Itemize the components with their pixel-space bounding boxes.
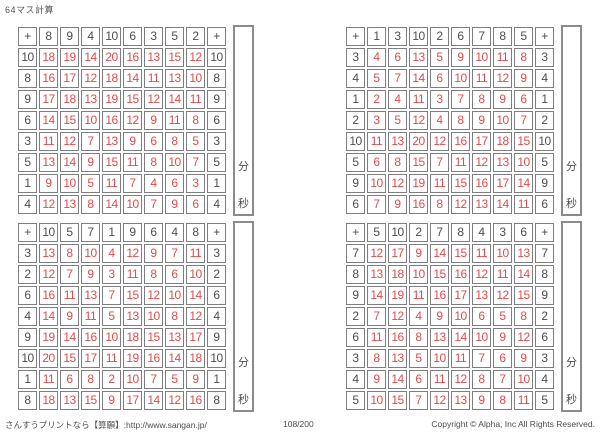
answer-cell: 11: [451, 349, 470, 368]
answer-cell: 17: [81, 349, 100, 368]
answer-cell: 7: [388, 69, 407, 88]
answer-cell: 14: [60, 153, 79, 172]
answer-cell: 4: [367, 48, 386, 67]
answer-cell: 11: [81, 307, 100, 326]
right-header-cell: 2: [535, 111, 554, 130]
answer-cell: 3: [186, 174, 205, 193]
answer-cell: 13: [388, 349, 407, 368]
answer-cell: 14: [144, 391, 163, 410]
left-header-cell: 8: [346, 265, 365, 284]
answer-cell: 12: [81, 69, 100, 88]
answer-cell: 7: [165, 244, 184, 263]
left-header-cell: 3: [18, 244, 37, 263]
right-header-cell: 1: [207, 174, 226, 193]
left-header-cell: 2: [346, 307, 365, 326]
answer-cell: 4: [409, 307, 428, 326]
top-header-cell: 2: [430, 27, 449, 46]
answer-cell: 8: [165, 132, 184, 151]
answer-cell: 11: [144, 69, 163, 88]
top-header-cell: 4: [81, 27, 100, 46]
answer-cell: 8: [186, 111, 205, 130]
answer-cell: 8: [81, 370, 100, 389]
footer-page-number: 108/200: [283, 419, 314, 429]
top-header-cell: 6: [144, 223, 163, 242]
answer-cell: 7: [81, 132, 100, 151]
answer-cell: 14: [367, 286, 386, 305]
answer-cell: 16: [39, 286, 58, 305]
answer-cell: 13: [472, 286, 491, 305]
answer-cell: 12: [430, 132, 449, 151]
answer-cell: 8: [144, 265, 163, 284]
answer-cell: 10: [430, 349, 449, 368]
answer-cell: 3: [367, 111, 386, 130]
answer-cell: 5: [430, 48, 449, 67]
minutes-label: 分: [235, 354, 252, 370]
answer-cell: 9: [81, 265, 100, 284]
answer-cell: 10: [472, 328, 491, 347]
answer-cell: 10: [81, 244, 100, 263]
top-header-cell: 8: [451, 223, 470, 242]
answer-cell: 2: [367, 90, 386, 109]
answer-cell: 8: [430, 195, 449, 214]
answer-cell: 15: [144, 328, 163, 347]
answer-cell: 11: [409, 286, 428, 305]
answer-cell: 17: [123, 391, 142, 410]
answer-cell: 12: [39, 195, 58, 214]
right-header-cell: 9: [535, 286, 554, 305]
answer-cell: 8: [388, 153, 407, 172]
top-header-cell: 5: [367, 223, 386, 242]
answer-cell: 12: [144, 286, 163, 305]
answer-cell: 18: [388, 265, 407, 284]
answer-cell: 9: [367, 370, 386, 389]
answer-cell: 17: [60, 69, 79, 88]
left-header-cell: 9: [346, 286, 365, 305]
answer-cell: 13: [514, 244, 533, 263]
left-header-cell: 4: [346, 69, 365, 88]
answer-cell: 12: [123, 111, 142, 130]
answer-cell: 8: [81, 195, 100, 214]
right-header-cell: 9: [535, 174, 554, 193]
answer-cell: 8: [165, 307, 184, 326]
answer-cell: 15: [81, 391, 100, 410]
top-header-cell: 7: [430, 223, 449, 242]
left-header-cell: 9: [18, 90, 37, 109]
right-header-cell: 4: [535, 370, 554, 389]
answer-cell: 7: [123, 174, 142, 193]
right-header-cell: 1: [207, 370, 226, 389]
right-header-cell: 9: [207, 90, 226, 109]
answer-cell: 13: [493, 153, 512, 172]
top-header-cell: 4: [165, 223, 184, 242]
left-header-cell: 10: [346, 132, 365, 151]
right-header-cell: 5: [535, 391, 554, 410]
answer-cell: 9: [144, 111, 163, 130]
left-header-cell: 8: [18, 391, 37, 410]
answer-cell: 4: [102, 244, 121, 263]
operator-cell: +: [346, 27, 365, 46]
left-header-cell: 2: [346, 111, 365, 130]
answer-cell: 15: [430, 265, 449, 284]
answer-cell: 8: [367, 349, 386, 368]
answer-cell: 12: [144, 90, 163, 109]
answer-cell: 11: [367, 132, 386, 151]
right-header-cell: 6: [207, 286, 226, 305]
answer-cell: 14: [514, 265, 533, 284]
answer-cell: 10: [451, 307, 470, 326]
answer-cell: 5: [165, 370, 184, 389]
answer-cell: 2: [102, 370, 121, 389]
answer-cell: 13: [144, 48, 163, 67]
answer-cell: 9: [493, 90, 512, 109]
answer-cell: 12: [388, 174, 407, 193]
right-header-cell: 10: [535, 132, 554, 151]
right-header-cell: 8: [207, 69, 226, 88]
answer-cell: 12: [367, 244, 386, 263]
answer-cell: 7: [367, 195, 386, 214]
answer-cell: 13: [388, 132, 407, 151]
answer-cell: 16: [123, 48, 142, 67]
answer-cell: 16: [81, 328, 100, 347]
answer-cell: 14: [81, 48, 100, 67]
answer-cell: 9: [493, 328, 512, 347]
answer-cell: 13: [102, 132, 121, 151]
answer-cell: 14: [186, 286, 205, 305]
answer-cell: 7: [430, 153, 449, 172]
answer-cell: 10: [144, 307, 163, 326]
answer-cell: 12: [186, 307, 205, 326]
timer-box: 分 秒: [233, 25, 254, 216]
operator-cell: +: [207, 27, 226, 46]
answer-cell: 9: [81, 153, 100, 172]
answer-cell: 13: [39, 153, 58, 172]
answer-cell: 4: [430, 111, 449, 130]
left-header-cell: 9: [346, 174, 365, 193]
answer-cell: 9: [39, 174, 58, 193]
answer-cell: 16: [388, 328, 407, 347]
answer-cell: 5: [102, 307, 121, 326]
right-header-cell: 1: [535, 90, 554, 109]
left-header-cell: 3: [18, 132, 37, 151]
answer-cell: 5: [388, 111, 407, 130]
calc-grid-table-4: +510278436+71217914151110137813181015161…: [344, 221, 556, 412]
top-header-cell: 3: [144, 27, 163, 46]
answer-cell: 6: [144, 132, 163, 151]
minutes-label: 分: [235, 158, 252, 174]
right-header-cell: 8: [535, 265, 554, 284]
answer-cell: 9: [165, 195, 184, 214]
left-header-cell: 7: [346, 244, 365, 263]
answer-cell: 12: [472, 153, 491, 172]
top-header-cell: 5: [165, 27, 184, 46]
left-header-cell: 6: [346, 328, 365, 347]
answer-cell: 7: [367, 307, 386, 326]
answer-cell: 16: [186, 391, 205, 410]
top-header-cell: 10: [388, 223, 407, 242]
answer-cell: 11: [102, 349, 121, 368]
answer-cell: 6: [186, 195, 205, 214]
answer-cell: 12: [451, 195, 470, 214]
left-header-cell: 5: [346, 153, 365, 172]
answer-cell: 14: [165, 90, 184, 109]
answer-cell: 11: [430, 370, 449, 389]
answer-cell: 17: [493, 174, 512, 193]
answer-cell: 16: [409, 195, 428, 214]
answer-cell: 13: [81, 90, 100, 109]
right-header-cell: 10: [207, 349, 226, 368]
answer-cell: 9: [409, 244, 428, 263]
answer-cell: 9: [472, 391, 491, 410]
operator-cell: +: [535, 27, 554, 46]
answer-cell: 6: [388, 48, 407, 67]
right-header-cell: 2: [207, 265, 226, 284]
answer-cell: 8: [409, 328, 428, 347]
answer-cell: 16: [39, 69, 58, 88]
answer-cell: 10: [123, 370, 142, 389]
answer-cell: 9: [102, 391, 121, 410]
answer-cell: 14: [493, 195, 512, 214]
answer-cell: 9: [451, 48, 470, 67]
right-header-cell: 6: [535, 195, 554, 214]
answer-cell: 11: [102, 174, 121, 193]
left-header-cell: 2: [18, 265, 37, 284]
top-header-cell: 6: [451, 27, 470, 46]
answer-cell: 12: [430, 391, 449, 410]
answer-cell: 12: [39, 265, 58, 284]
answer-cell: 18: [39, 48, 58, 67]
answer-cell: 6: [430, 69, 449, 88]
answer-cell: 7: [409, 391, 428, 410]
answer-cell: 18: [102, 69, 121, 88]
answer-cell: 11: [514, 195, 533, 214]
answer-cell: 6: [367, 153, 386, 172]
answer-cell: 7: [493, 370, 512, 389]
answer-cell: 3: [102, 265, 121, 284]
top-header-cell: 8: [186, 223, 205, 242]
answer-cell: 19: [39, 328, 58, 347]
seconds-label: 秒: [235, 195, 252, 211]
calc-grid-block-4: +510278436+71217914151110137813181015161…: [344, 221, 582, 412]
answer-cell: 10: [102, 328, 121, 347]
answer-cell: 11: [451, 153, 470, 172]
left-header-cell: 3: [346, 349, 365, 368]
operator-cell: +: [535, 223, 554, 242]
answer-cell: 13: [409, 48, 428, 67]
answer-cell: 17: [186, 328, 205, 347]
left-header-cell: 5: [346, 391, 365, 410]
answer-cell: 15: [388, 391, 407, 410]
answer-cell: 10: [451, 69, 470, 88]
answer-cell: 10: [493, 244, 512, 263]
answer-cell: 3: [430, 90, 449, 109]
answer-cell: 17: [472, 132, 491, 151]
answer-cell: 15: [102, 153, 121, 172]
footer-copyright: Copyright © Alpha, Inc All Rights Reserv…: [431, 419, 595, 429]
answer-cell: 12: [388, 307, 407, 326]
answer-cell: 9: [388, 195, 407, 214]
answer-cell: 9: [186, 370, 205, 389]
minutes-label: 分: [563, 354, 580, 370]
left-header-cell: 10: [18, 349, 37, 368]
right-header-cell: 9: [207, 328, 226, 347]
answer-cell: 12: [514, 328, 533, 347]
calc-grid-table-1: +894106352+10181914201613151210816171218…: [16, 25, 228, 216]
top-header-cell: 10: [409, 27, 428, 46]
answer-cell: 6: [165, 174, 184, 193]
answer-cell: 10: [165, 153, 184, 172]
right-header-cell: 8: [207, 391, 226, 410]
answer-cell: 9: [123, 132, 142, 151]
right-header-cell: 3: [535, 48, 554, 67]
right-header-cell: 10: [207, 48, 226, 67]
answer-cell: 11: [367, 328, 386, 347]
answer-cell: 6: [514, 90, 533, 109]
top-header-cell: 10: [102, 27, 121, 46]
answer-cell: 7: [186, 153, 205, 172]
answer-cell: 14: [514, 174, 533, 193]
right-header-cell: 3: [207, 244, 226, 263]
answer-cell: 5: [81, 174, 100, 193]
answer-cell: 13: [165, 328, 184, 347]
left-header-cell: 9: [18, 328, 37, 347]
answer-cell: 19: [102, 90, 121, 109]
answer-cell: 10: [514, 153, 533, 172]
answer-cell: 10: [186, 69, 205, 88]
worksheet-page: 64マス計算 +894106352+1018191420161315121081…: [0, 0, 600, 435]
answer-cell: 11: [514, 391, 533, 410]
answer-cell: 8: [60, 244, 79, 263]
answer-cell: 14: [123, 69, 142, 88]
answer-cell: 4: [388, 90, 407, 109]
answer-cell: 7: [144, 195, 163, 214]
top-header-cell: 5: [514, 27, 533, 46]
seconds-label: 秒: [235, 391, 252, 407]
answer-cell: 14: [60, 328, 79, 347]
answer-cell: 9: [472, 111, 491, 130]
answer-cell: 20: [39, 349, 58, 368]
answer-cell: 8: [144, 153, 163, 172]
answer-cell: 15: [451, 244, 470, 263]
answer-cell: 14: [388, 370, 407, 389]
calc-grid-block-2: +131026785+34613591011834571461011129412…: [344, 25, 582, 216]
top-header-cell: 8: [493, 27, 512, 46]
answer-cell: 18: [39, 391, 58, 410]
answer-cell: 7: [60, 265, 79, 284]
answer-cell: 11: [409, 90, 428, 109]
answer-cell: 15: [123, 286, 142, 305]
answer-cell: 9: [430, 307, 449, 326]
answer-cell: 15: [123, 90, 142, 109]
answer-cell: 4: [144, 174, 163, 193]
operator-cell: +: [346, 223, 365, 242]
answer-cell: 13: [165, 69, 184, 88]
operator-cell: +: [18, 27, 37, 46]
left-header-cell: 8: [18, 69, 37, 88]
answer-cell: 8: [472, 90, 491, 109]
answer-cell: 8: [493, 391, 512, 410]
top-header-cell: 4: [472, 223, 491, 242]
answer-cell: 9: [514, 349, 533, 368]
minutes-label: 分: [563, 158, 580, 174]
answer-cell: 13: [60, 195, 79, 214]
answer-cell: 12: [493, 286, 512, 305]
top-header-cell: 6: [123, 27, 142, 46]
answer-cell: 14: [430, 244, 449, 263]
answer-cell: 11: [186, 244, 205, 263]
answer-cell: 18: [123, 328, 142, 347]
calc-grid-table-3: +105719648+31381041297113212793118610261…: [16, 221, 228, 412]
answer-cell: 10: [493, 111, 512, 130]
answer-cell: 15: [409, 153, 428, 172]
top-header-cell: 3: [493, 223, 512, 242]
answer-cell: 8: [472, 370, 491, 389]
answer-cell: 12: [409, 111, 428, 130]
timer-box: 分 秒: [561, 221, 582, 412]
answer-cell: 12: [165, 391, 184, 410]
answer-cell: 14: [409, 69, 428, 88]
answer-cell: 7: [472, 349, 491, 368]
answer-cell: 19: [60, 48, 79, 67]
answer-cell: 7: [102, 286, 121, 305]
top-header-cell: 5: [60, 223, 79, 242]
answer-cell: 14: [451, 328, 470, 347]
answer-cell: 17: [388, 244, 407, 263]
answer-cell: 10: [186, 265, 205, 284]
answer-cell: 9: [60, 307, 79, 326]
answer-cell: 6: [60, 370, 79, 389]
answer-cell: 12: [472, 265, 491, 284]
answer-cell: 12: [186, 48, 205, 67]
answer-cell: 18: [60, 90, 79, 109]
answer-cell: 9: [514, 69, 533, 88]
answer-cell: 11: [472, 244, 491, 263]
answer-cell: 11: [39, 132, 58, 151]
left-header-cell: 6: [346, 195, 365, 214]
answer-cell: 14: [39, 111, 58, 130]
answer-cell: 14: [102, 195, 121, 214]
answer-cell: 10: [123, 195, 142, 214]
answer-cell: 5: [493, 307, 512, 326]
answer-cell: 5: [367, 69, 386, 88]
answer-cell: 10: [514, 370, 533, 389]
answer-cell: 15: [451, 174, 470, 193]
top-header-cell: 9: [123, 223, 142, 242]
answer-cell: 10: [367, 174, 386, 193]
answer-cell: 13: [430, 328, 449, 347]
calc-grid-block-3: +105719648+31381041297113212793118610261…: [16, 221, 254, 412]
answer-cell: 10: [409, 265, 428, 284]
answer-cell: 7: [451, 90, 470, 109]
answer-cell: 8: [514, 307, 533, 326]
top-header-cell: 9: [60, 27, 79, 46]
answer-cell: 11: [165, 111, 184, 130]
answer-cell: 11: [39, 370, 58, 389]
page-title: 64マス計算: [5, 3, 54, 16]
answer-cell: 8: [514, 48, 533, 67]
answer-cell: 12: [451, 370, 470, 389]
answer-cell: 11: [430, 174, 449, 193]
top-header-cell: 7: [81, 223, 100, 242]
top-header-cell: 10: [39, 223, 58, 242]
left-header-cell: 1: [346, 90, 365, 109]
answer-cell: 16: [102, 111, 121, 130]
answer-cell: 11: [493, 48, 512, 67]
answer-cell: 12: [493, 69, 512, 88]
top-header-cell: 8: [39, 27, 58, 46]
answer-cell: 13: [367, 265, 386, 284]
answer-cell: 13: [39, 244, 58, 263]
answer-cell: 6: [165, 265, 184, 284]
